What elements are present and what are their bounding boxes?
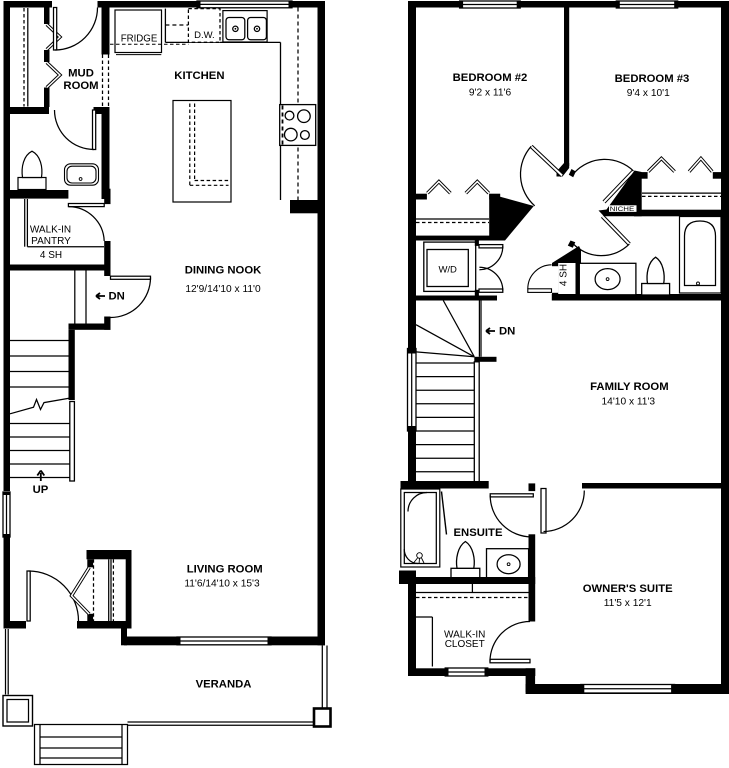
svg-text:14'10 x 11'3: 14'10 x 11'3 (602, 397, 656, 408)
svg-text:BEDROOM #2: BEDROOM #2 (453, 72, 528, 84)
svg-text:ENSUITE: ENSUITE (454, 527, 503, 539)
svg-text:FRIDGE: FRIDGE (121, 34, 158, 45)
svg-text:FAMILY ROOM: FAMILY ROOM (590, 381, 668, 393)
svg-text:ROOM: ROOM (63, 80, 98, 92)
svg-text:4 SH: 4 SH (559, 264, 570, 286)
svg-text:CLOSET: CLOSET (445, 639, 485, 650)
svg-text:VERANDA: VERANDA (196, 679, 252, 691)
svg-text:PANTRY: PANTRY (31, 236, 71, 247)
svg-text:W/D: W/D (438, 265, 457, 276)
svg-text:NICHE: NICHE (610, 207, 635, 213)
svg-text:9'2 x 11'6: 9'2 x 11'6 (469, 88, 512, 99)
svg-text:OWNER'S SUITE: OWNER'S SUITE (583, 583, 673, 595)
svg-text:UP: UP (33, 484, 49, 496)
svg-text:4 SH: 4 SH (40, 250, 62, 261)
svg-text:9'4 x 10'1: 9'4 x 10'1 (627, 88, 670, 99)
svg-text:11'5 x 12'1: 11'5 x 12'1 (604, 598, 652, 609)
svg-text:BEDROOM #3: BEDROOM #3 (615, 73, 690, 85)
svg-text:DINING NOOK: DINING NOOK (185, 265, 262, 277)
svg-text:LIVING ROOM: LIVING ROOM (187, 564, 263, 576)
svg-text:D.W.: D.W. (194, 30, 215, 41)
svg-text:WALK-IN: WALK-IN (30, 225, 71, 236)
svg-text:11'6/14'10 x 15'3: 11'6/14'10 x 15'3 (184, 579, 260, 590)
svg-text:DN: DN (499, 326, 515, 338)
svg-text:DN: DN (109, 291, 125, 303)
svg-text:12'9/14'10 x 11'0: 12'9/14'10 x 11'0 (185, 284, 261, 295)
svg-text:MUD: MUD (68, 68, 94, 80)
svg-text:KITCHEN: KITCHEN (174, 70, 224, 82)
